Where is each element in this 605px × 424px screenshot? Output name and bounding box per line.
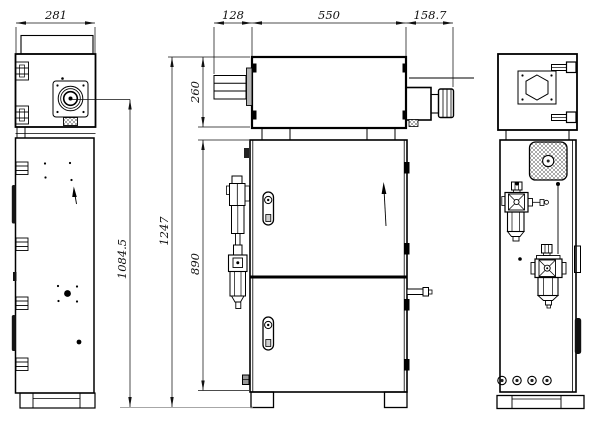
- dim-text-total-height: 1247: [157, 216, 171, 246]
- base-plinth-right: [497, 396, 584, 409]
- dim-text-head-offset: 128: [222, 8, 244, 22]
- three-view-drawing: 281 128 550 158.7 260 1247 890 1084.5: [0, 0, 605, 424]
- side-view-left: [12, 36, 96, 409]
- head-top-cap: [21, 36, 93, 55]
- panel-screw-3: [518, 257, 522, 261]
- door-latch-top: [244, 148, 249, 158]
- door-latch-bottom: [243, 375, 250, 385]
- mounting-hole-pattern-mid: [57, 285, 82, 345]
- side-door-hinges: [16, 162, 28, 371]
- upper-door-handle: [263, 192, 274, 225]
- front-view: [214, 57, 474, 408]
- laser-head-right: [498, 54, 577, 130]
- cabinet-front: [250, 140, 407, 392]
- dim-text-head-height: 260: [188, 81, 202, 104]
- dimensions: 281 128 550 158.7 260 1247 890 1084.5: [16, 8, 453, 408]
- mounting-flange: [247, 68, 253, 106]
- lower-door-handle: [263, 317, 274, 350]
- hex-access-plate: [518, 71, 556, 104]
- filter-regulator-unit-2: [531, 245, 566, 309]
- dim-text-beam-height: 1084.5: [115, 239, 129, 279]
- mounting-hole-pattern-upper: [44, 162, 73, 181]
- base-plinth-left: [20, 393, 95, 408]
- dim-text-cabinet-height: 890: [188, 253, 202, 275]
- callout-arrow-left: [72, 187, 77, 205]
- dim-text-head-length: 550: [318, 8, 340, 22]
- head-hinge-bottom: [16, 106, 29, 124]
- side-pipe-fitting: [407, 288, 432, 297]
- filter-regulator-unit-1: [502, 182, 549, 241]
- heat-sink-fins: [214, 68, 252, 106]
- callout-arrow-front: [382, 182, 387, 226]
- door-seal-strip-lower: [12, 315, 16, 351]
- side-view-right: [497, 54, 584, 409]
- head-hinge-top: [16, 62, 29, 80]
- barrel-hinge-bottom: [552, 112, 577, 123]
- panel-screw-2: [556, 182, 560, 186]
- foot-right: [385, 392, 408, 408]
- dim-text-nozzle: 158.7: [414, 8, 448, 22]
- laser-head-side: [16, 54, 96, 127]
- head-pedestal-left: [262, 128, 290, 140]
- door-seal-strip-upper: [12, 185, 16, 224]
- panel-screw-dot: [61, 77, 64, 80]
- laser-output-connector: [53, 77, 88, 125]
- cabinet-side-panel: [16, 138, 95, 393]
- foot-left: [251, 392, 274, 408]
- technical-drawing-page: 281 128 550 158.7 260 1247 890 1084.5: [0, 0, 605, 424]
- nozzle-assembly: [406, 78, 474, 127]
- head-corner-screws: [253, 64, 406, 120]
- connector-clamp: [64, 118, 78, 126]
- edge-handle: [575, 318, 581, 354]
- head-pedestal-right: [367, 128, 395, 140]
- fan-grille: [530, 142, 568, 180]
- laser-head-front: [252, 57, 406, 128]
- dim-text-depth: 281: [44, 8, 67, 22]
- door-seal-strip-mid: [13, 272, 17, 281]
- barrel-hinge-top: [552, 62, 577, 73]
- bottom-connector-row: [498, 376, 551, 384]
- air-fitting: [409, 120, 418, 127]
- neck-right: [506, 130, 569, 140]
- pneumatic-frl-stack-front: [227, 176, 250, 309]
